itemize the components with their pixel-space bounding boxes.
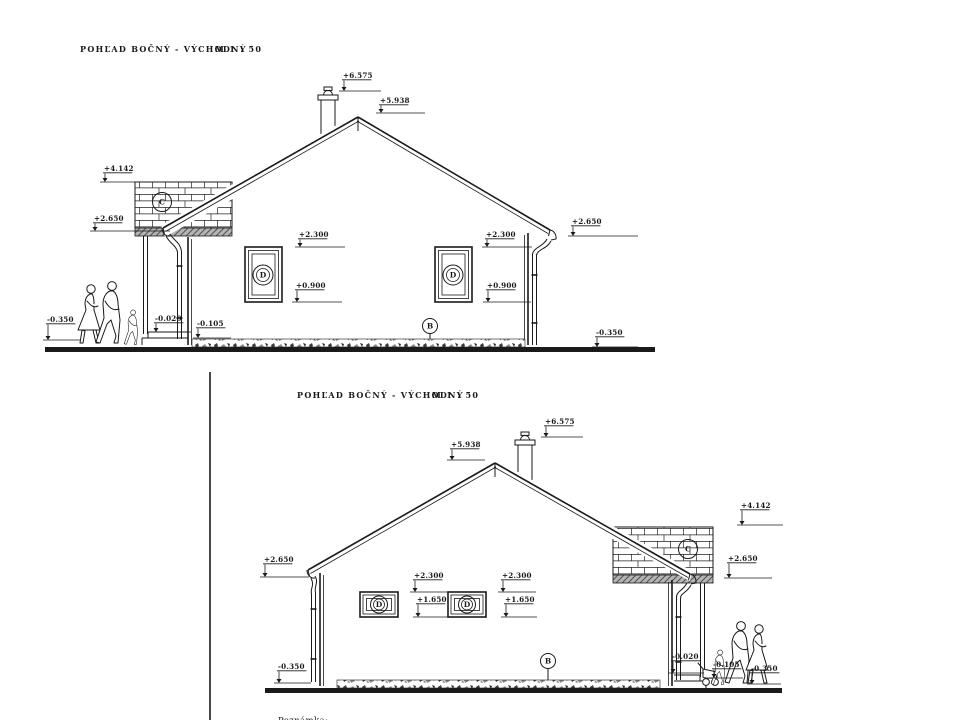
drawing-scale: M 1 : 50 bbox=[432, 390, 479, 400]
svg-text:+2.300: +2.300 bbox=[502, 571, 532, 580]
gutter-downspout-left bbox=[307, 570, 317, 682]
svg-text:+2.300: +2.300 bbox=[414, 571, 444, 580]
gutter-downspout-right bbox=[532, 230, 557, 345]
reference-label-window2: D bbox=[443, 265, 463, 285]
svg-text:-0.020: -0.020 bbox=[155, 314, 182, 323]
level-marker-ridge: +5.938 bbox=[447, 440, 485, 460]
level-marker-window1_head: +2.300 bbox=[295, 230, 345, 247]
svg-text:+4.142: +4.142 bbox=[104, 164, 134, 173]
level-marker-window2_head: +2.300 bbox=[498, 571, 536, 592]
level-marker-gable_wall_top: +4.142 bbox=[100, 164, 186, 182]
level-marker-ridge: +5.938 bbox=[376, 96, 425, 113]
svg-text:+2.300: +2.300 bbox=[299, 230, 329, 239]
svg-text:+2.650: +2.650 bbox=[572, 217, 602, 226]
level-marker-gable_wall_top: +4.142 bbox=[737, 501, 783, 525]
level-marker-window2_sill: +1.650 bbox=[501, 595, 537, 617]
svg-text:+1.650: +1.650 bbox=[417, 595, 447, 604]
level-marker-porch_floor: -0.020 bbox=[668, 652, 704, 673]
svg-text:D: D bbox=[376, 600, 383, 609]
svg-text:+4.142: +4.142 bbox=[741, 501, 771, 510]
level-marker-plinth: -0.105 bbox=[709, 660, 743, 678]
svg-text:B: B bbox=[545, 657, 551, 666]
level-marker-window1_sill: +1.650 bbox=[413, 595, 449, 617]
svg-text:D: D bbox=[464, 600, 471, 609]
svg-text:+1.650: +1.650 bbox=[505, 595, 535, 604]
gutter-downspout-right bbox=[676, 574, 697, 680]
svg-text:+5.938: +5.938 bbox=[380, 96, 410, 105]
svg-text:-0.105: -0.105 bbox=[197, 319, 224, 328]
level-marker-ground_left: -0.350 bbox=[274, 662, 311, 683]
level-marker-chimney_top: +6.575 bbox=[541, 417, 583, 437]
house-walls bbox=[188, 233, 528, 345]
reference-label-plinth_ref: B bbox=[541, 654, 556, 669]
elevation-sheet-1: POHĽAD BOČNÝ - VÝCHODNÝ M 1 : 50 bbox=[42, 38, 667, 368]
svg-text:+2.300: +2.300 bbox=[486, 230, 516, 239]
level-marker-window1_head: +2.300 bbox=[410, 571, 448, 592]
elevation-sheet-2: POHĽAD BOČNÝ - VÝCHODNÝ M 1 : 50 bbox=[209, 372, 960, 720]
svg-text:D: D bbox=[260, 271, 267, 280]
level-marker-window2_sill: +0.900 bbox=[483, 281, 531, 302]
svg-text:+2.650: +2.650 bbox=[94, 214, 124, 223]
svg-text:D: D bbox=[450, 271, 457, 280]
level-marker-eave_right: +2.650 bbox=[724, 554, 772, 578]
svg-text:-0.350: -0.350 bbox=[751, 664, 778, 673]
reference-label-window1: D bbox=[253, 265, 273, 285]
svg-text:+5.938: +5.938 bbox=[451, 440, 481, 449]
house-walls bbox=[320, 573, 672, 686]
level-marker-porch_floor: -0.020 bbox=[151, 314, 191, 332]
level-marker-plinth: -0.105 bbox=[193, 319, 231, 338]
level-marker-eave_right: +2.650 bbox=[568, 217, 638, 236]
svg-text:+2.650: +2.650 bbox=[728, 554, 758, 563]
reference-label-plinth_ref: B bbox=[423, 319, 438, 334]
svg-text:B: B bbox=[427, 322, 433, 331]
note-label: Poznámka: bbox=[278, 715, 328, 720]
svg-text:-0.350: -0.350 bbox=[47, 315, 74, 324]
porch-and-steps bbox=[674, 583, 706, 688]
svg-text:-0.020: -0.020 bbox=[672, 652, 699, 661]
svg-text:-0.350: -0.350 bbox=[596, 328, 623, 337]
level-marker-ground_left: -0.350 bbox=[43, 315, 81, 340]
drawing-scale: M 1 : 50 bbox=[215, 44, 262, 54]
svg-text:-0.350: -0.350 bbox=[278, 662, 305, 671]
svg-text:+6.575: +6.575 bbox=[343, 71, 373, 80]
svg-text:+6.575: +6.575 bbox=[545, 417, 575, 426]
level-marker-window1_sill: +0.900 bbox=[292, 281, 342, 302]
svg-text:+0.900: +0.900 bbox=[296, 281, 326, 290]
level-marker-eave_left: +2.650 bbox=[260, 555, 309, 577]
level-marker-ground_right: -0.350 bbox=[592, 328, 638, 347]
svg-text:+0.900: +0.900 bbox=[487, 281, 517, 290]
svg-text:+2.650: +2.650 bbox=[264, 555, 294, 564]
level-marker-chimney_top: +6.575 bbox=[339, 71, 381, 91]
people-group bbox=[78, 282, 138, 345]
people-group bbox=[698, 622, 768, 686]
svg-text:C: C bbox=[159, 198, 165, 207]
svg-text:C: C bbox=[685, 545, 691, 554]
gable-brick-wall bbox=[135, 182, 232, 236]
svg-text:-0.105: -0.105 bbox=[713, 660, 740, 669]
